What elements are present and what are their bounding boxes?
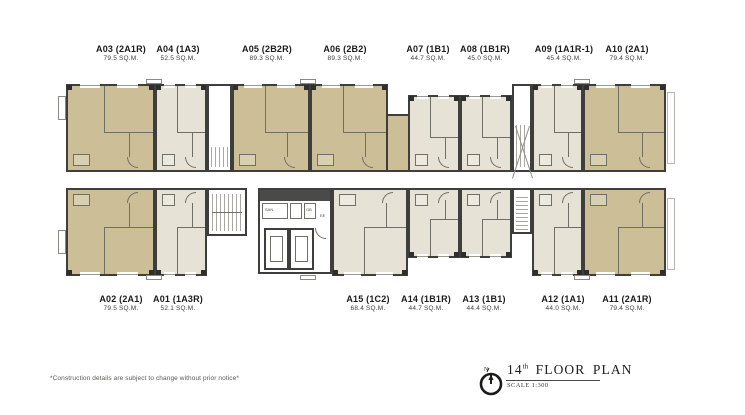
- partition-wall: [192, 203, 193, 228]
- unit-A04: [155, 84, 207, 172]
- unit-A02: [66, 188, 155, 276]
- unit-label-A10: A10 (2A1)79.4 SQ.M.: [605, 44, 648, 62]
- facade-ledge: [146, 79, 162, 84]
- window-opening: [469, 94, 481, 99]
- wall-cap: [304, 85, 309, 90]
- door-swing: [127, 192, 138, 203]
- elevator-car: [270, 236, 283, 262]
- window-opening: [438, 94, 450, 99]
- window-opening: [185, 272, 197, 277]
- wall-cap: [409, 96, 414, 101]
- unit-area-label: 52.5 SQ.M.: [156, 55, 199, 62]
- unit-label-A14: A14 (1B1R)44.7 SQ.M.: [401, 294, 451, 312]
- window-opening: [561, 272, 572, 277]
- unit-A07: [408, 95, 460, 172]
- door-swing: [438, 157, 449, 168]
- bathroom-outline: [317, 154, 334, 166]
- window-opening: [596, 83, 615, 88]
- scale-label: SCALE 1:300: [507, 382, 548, 389]
- facade-ledge: [574, 79, 590, 84]
- core-gb-room: GB: [304, 203, 316, 219]
- door-swing: [490, 157, 501, 168]
- unit-name-label: A01 (1A3R): [153, 294, 203, 304]
- window-opening: [469, 254, 481, 259]
- unit-name-label: A04 (1A3): [156, 44, 199, 54]
- title-block: N 14th FLOOR PLAN SCALE 1:300: [476, 361, 706, 405]
- wall-cap: [156, 85, 161, 90]
- stairwell-top-left: [207, 84, 232, 172]
- unit-label-A02: A02 (2A1)79.5 SQ.M.: [99, 294, 142, 312]
- unit-A10: [583, 84, 666, 172]
- bathroom-outline: [339, 194, 356, 206]
- window-opening: [185, 83, 197, 88]
- unit-label-A05: A05 (2B2R)89.3 SQ.M.: [242, 44, 292, 62]
- title-underline: [506, 380, 600, 381]
- unit-name-label: A06 (2B2): [323, 44, 366, 54]
- unit-area-label: 52.1 SQ.M.: [153, 305, 203, 312]
- wall-cap: [454, 96, 459, 101]
- unit-A09: [532, 84, 583, 172]
- partition-wall: [386, 203, 387, 228]
- wall-cap: [461, 252, 466, 257]
- stair-treads: [211, 147, 228, 167]
- partition-wall: [265, 86, 266, 132]
- unit-A03: [66, 84, 155, 172]
- wall-cap: [67, 270, 72, 275]
- bathroom-outline: [590, 154, 607, 166]
- wall-cap: [201, 85, 206, 90]
- unit-label-A06: A06 (2B2)89.3 SQ.M.: [323, 44, 366, 62]
- unit-name-label: A12 (1A1): [541, 294, 584, 304]
- north-compass-icon: N: [476, 363, 506, 399]
- wall-cap: [382, 85, 387, 90]
- unit-name-label: A09 (1A1R-1): [535, 44, 593, 54]
- window-opening: [438, 254, 450, 259]
- core-wc-cell: [290, 203, 302, 219]
- unit-label-A12: A12 (1A1)44.0 SQ.M.: [541, 294, 584, 312]
- bathroom-outline: [415, 154, 428, 166]
- bathroom-outline: [73, 154, 90, 166]
- wall-cap: [660, 270, 665, 275]
- bathroom-outline: [467, 194, 480, 206]
- wall-cap: [233, 85, 238, 90]
- wall-cap: [454, 252, 459, 257]
- wall-cap: [311, 85, 316, 90]
- unit-name-label: A14 (1B1R): [401, 294, 451, 304]
- west-balcony: [58, 230, 66, 254]
- bathroom-outline: [415, 194, 428, 206]
- west-balcony: [58, 96, 66, 120]
- partition-wall: [568, 132, 569, 157]
- partition-wall: [129, 132, 130, 157]
- facade-ledge: [146, 275, 162, 280]
- unit-area-label: 79.5 SQ.M.: [99, 305, 142, 312]
- elevator-shaft-2: [289, 228, 314, 270]
- stairwell-bottom-left: [207, 188, 247, 236]
- window-opening: [631, 272, 650, 277]
- window-opening: [117, 83, 137, 88]
- window-opening: [490, 254, 502, 259]
- wall-cap: [660, 85, 665, 90]
- wall-cap: [584, 85, 589, 90]
- partition-wall: [287, 132, 288, 157]
- wall-cap: [533, 85, 538, 90]
- window-opening: [376, 272, 393, 277]
- unit-label-A03: A03 (2A1R)79.5 SQ.M.: [96, 44, 146, 62]
- window-opening: [541, 272, 552, 277]
- bathroom-outline: [73, 194, 90, 206]
- unit-name-label: A07 (1B1): [406, 44, 449, 54]
- partition-wall: [177, 228, 178, 274]
- bathroom-outline: [539, 154, 552, 166]
- core-shaft-dark: [260, 190, 330, 201]
- door-swing: [490, 192, 501, 203]
- bathroom-outline: [239, 154, 256, 166]
- door-swing: [284, 157, 295, 168]
- door-swing: [185, 157, 196, 168]
- window-opening: [596, 272, 615, 277]
- stair-rail: [212, 212, 242, 213]
- window-opening: [277, 83, 295, 88]
- partition-wall: [343, 86, 344, 132]
- core-san-room: SAN: [262, 203, 288, 219]
- partition-wall: [430, 220, 431, 256]
- partition-wall: [497, 137, 498, 159]
- wall-cap: [461, 96, 466, 101]
- facade-ledge: [300, 79, 316, 84]
- unit-name-label: A03 (2A1R): [96, 44, 146, 54]
- window-opening: [244, 83, 262, 88]
- unit-name-label: A10 (2A1): [605, 44, 648, 54]
- wall-cap: [201, 270, 206, 275]
- partition-wall: [365, 132, 366, 157]
- unit-name-label: A15 (1C2): [346, 294, 389, 304]
- unit-label-A04: A04 (1A3)52.5 SQ.M.: [156, 44, 199, 62]
- window-opening: [490, 94, 502, 99]
- unit-label-A13: A13 (1B1)44.4 SQ.M.: [462, 294, 505, 312]
- unit-label-A08: A08 (1B1R)45.0 SQ.M.: [460, 44, 510, 62]
- wall-cap: [506, 252, 511, 257]
- door-swing: [315, 228, 326, 239]
- wall-cap: [506, 96, 511, 101]
- door-swing: [639, 192, 650, 203]
- unit-name-label: A02 (2A1): [99, 294, 142, 304]
- door-swing: [438, 192, 449, 203]
- partition-wall: [554, 86, 555, 132]
- bathroom-outline: [539, 194, 552, 206]
- partition-wall: [482, 220, 483, 256]
- window-opening: [117, 272, 137, 277]
- partition-wall: [618, 228, 619, 274]
- unit-A13: [460, 188, 512, 258]
- wall-cap: [333, 270, 338, 275]
- window-opening: [417, 94, 429, 99]
- gb-room-label: GB: [306, 208, 312, 213]
- partition-wall: [482, 97, 483, 137]
- unit-name-label: A08 (1B1R): [460, 44, 510, 54]
- partition-wall: [129, 203, 130, 228]
- san-room-label: SAN: [265, 208, 273, 213]
- elevator-car: [295, 236, 308, 262]
- unit-area-label: 44.4 SQ.M.: [462, 305, 505, 312]
- wall-cap: [402, 270, 407, 275]
- door-swing: [562, 157, 573, 168]
- stair-treads: [516, 194, 528, 230]
- partition-wall: [364, 228, 365, 274]
- facade-ledge: [574, 275, 590, 280]
- partition-wall: [104, 228, 105, 274]
- disclaimer-note: *Construction details are subject to cha…: [50, 375, 239, 382]
- unit-area-label: 45.0 SQ.M.: [460, 55, 510, 62]
- window-opening: [344, 272, 361, 277]
- unit-name-label: A05 (2B2R): [242, 44, 292, 54]
- window-opening: [80, 83, 100, 88]
- unit-label-A09: A09 (1A1R-1)45.4 SQ.M.: [535, 44, 593, 62]
- partition-wall: [642, 132, 643, 157]
- door-swing: [362, 157, 373, 168]
- unit-area-label: 79.4 SQ.M.: [605, 55, 648, 62]
- partition-wall: [618, 86, 619, 132]
- unit-area-label: 44.7 SQ.M.: [401, 305, 451, 312]
- door-swing: [127, 157, 138, 168]
- bathroom-outline: [590, 194, 607, 206]
- unit-A08: [460, 95, 512, 172]
- unit-label-A15: A15 (1C2)68.4 SQ.M.: [346, 294, 389, 312]
- unit-label-A01: A01 (1A3R)52.1 SQ.M.: [153, 294, 203, 312]
- floor-plan-canvas: A03 (2A1R)79.5 SQ.M.A04 (1A3)52.5 SQ.M.A…: [0, 0, 745, 415]
- door-swing: [562, 192, 573, 203]
- partition-wall: [177, 86, 178, 132]
- unit-A06-extension: [388, 114, 410, 172]
- partition-wall: [642, 203, 643, 228]
- wall-cap: [533, 270, 538, 275]
- window-opening: [541, 83, 552, 88]
- window-opening: [322, 83, 340, 88]
- unit-name-label: A13 (1B1): [462, 294, 505, 304]
- bathroom-outline: [467, 154, 480, 166]
- unit-A06: [310, 84, 388, 172]
- unit-area-label: 79.4 SQ.M.: [602, 305, 652, 312]
- window-opening: [355, 83, 373, 88]
- partition-wall: [192, 132, 193, 157]
- unit-area-label: 89.3 SQ.M.: [323, 55, 366, 62]
- partition-wall: [445, 137, 446, 159]
- unit-area-label: 79.5 SQ.M.: [96, 55, 146, 62]
- elevator-shaft-1: [264, 228, 289, 270]
- unit-name-label: A11 (2A1R): [602, 294, 652, 304]
- window-opening: [164, 83, 176, 88]
- unit-A12: [532, 188, 583, 276]
- unit-A11: [583, 188, 666, 276]
- partition-wall: [554, 228, 555, 274]
- wall-cap: [67, 85, 72, 90]
- partition-wall: [568, 203, 569, 228]
- unit-A05: [232, 84, 310, 172]
- east-balcony-rail: [667, 198, 675, 270]
- window-opening: [164, 272, 176, 277]
- unit-area-label: 68.4 SQ.M.: [346, 305, 389, 312]
- unit-area-label: 89.3 SQ.M.: [242, 55, 292, 62]
- wall-cap: [149, 85, 154, 90]
- unit-area-label: 44.7 SQ.M.: [406, 55, 449, 62]
- window-opening: [631, 83, 650, 88]
- wall-cap: [577, 85, 582, 90]
- ee-room-label: EE: [320, 214, 325, 219]
- window-opening: [561, 83, 572, 88]
- partition-wall: [104, 86, 105, 132]
- floor-plan-title: 14th FLOOR PLAN: [507, 362, 633, 378]
- unit-area-label: 45.4 SQ.M.: [535, 55, 593, 62]
- bathroom-outline: [162, 194, 175, 206]
- unit-area-label: 44.0 SQ.M.: [541, 305, 584, 312]
- door-swing: [639, 157, 650, 168]
- unit-A15: [332, 188, 408, 276]
- window-opening: [80, 272, 100, 277]
- facade-ledge: [300, 275, 316, 280]
- bathroom-outline: [162, 154, 175, 166]
- stairwell-top-right: [512, 84, 532, 172]
- unit-A01: [155, 188, 207, 276]
- unit-A14: [408, 188, 460, 258]
- door-swing: [382, 192, 393, 203]
- door-swing: [185, 192, 196, 203]
- window-opening: [417, 254, 429, 259]
- unit-label-A07: A07 (1B1)44.7 SQ.M.: [406, 44, 449, 62]
- east-balcony-rail: [667, 92, 675, 164]
- unit-label-A11: A11 (2A1R)79.4 SQ.M.: [602, 294, 652, 312]
- partition-wall: [430, 97, 431, 137]
- service-core: SAN GB EE: [258, 188, 332, 274]
- stairwell-bottom-right: [512, 188, 532, 234]
- wall-cap: [409, 252, 414, 257]
